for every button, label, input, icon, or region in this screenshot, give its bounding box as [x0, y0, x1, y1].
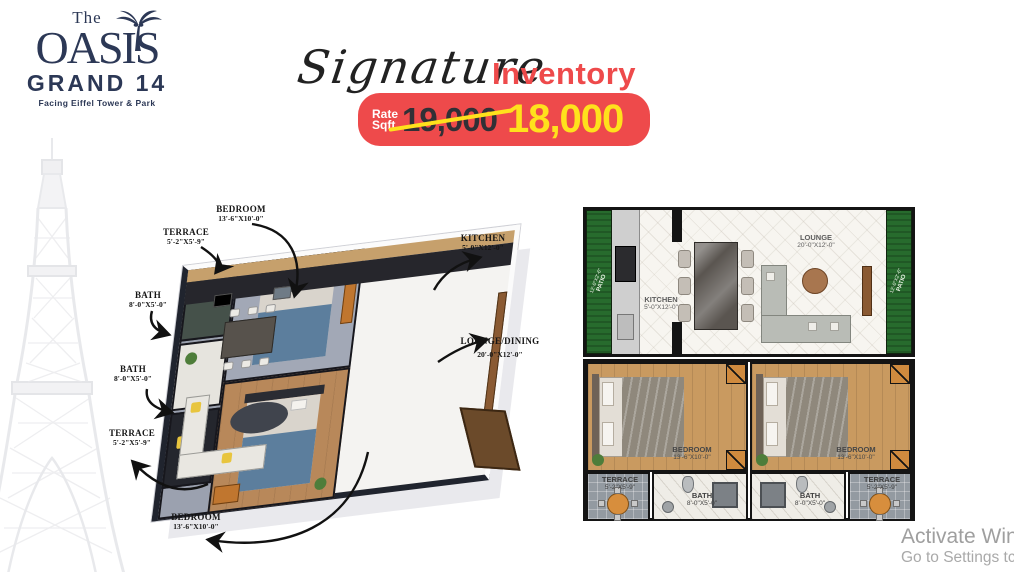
round-table: [607, 493, 629, 515]
headline-accent: Inventory: [492, 56, 636, 92]
floor-plan-3d: [152, 224, 521, 521]
logo-tagline: Facing Eiffel Tower & Park: [22, 98, 172, 108]
dresser: [212, 483, 240, 505]
coffee-table-2d: [802, 268, 828, 294]
label-bath-2: BATH8'-0"X5'-0": [100, 364, 166, 383]
wardrobe-hatch: [890, 364, 910, 384]
bath-left-2d: BATH 8'-0"X5'-0": [652, 472, 748, 521]
living-zone-2d: 12'-0"X2'-6" PATIO KITCHEN 5'-0"X12'-0": [583, 207, 915, 357]
kitchen-counter-2d: [612, 210, 640, 354]
plant: [756, 454, 768, 466]
windows-activation-watermark: Activate Win Go to Settings tc: [901, 525, 1014, 567]
patio-left: 12'-0"X2'-6" PATIO: [586, 210, 612, 354]
tv-console-2d: [862, 266, 872, 316]
chair: [678, 277, 691, 295]
flyer: The OASIS GRAND 14 Facing Eiffel Tower &…: [0, 0, 1014, 572]
label-bath-1: BATH8'-0"X5'-0": [115, 290, 181, 309]
bedroom-zone-2d: BEDROOM 13'-6"X10'-0" BEDROOM 13'-6"X10'…: [583, 359, 915, 521]
bedroom-right-2d: BEDROOM 13'-6"X10'-0": [750, 362, 912, 472]
wardrobe: [340, 282, 357, 324]
chair: [741, 250, 754, 268]
label-bedroom-bottom: BEDROOM13'-6"X10'-0": [150, 512, 242, 531]
cushion: [830, 322, 839, 331]
plant: [592, 454, 604, 466]
oasis-logo: The OASIS GRAND 14 Facing Eiffel Tower &…: [22, 8, 172, 108]
chair: [614, 514, 621, 521]
chair: [893, 500, 900, 507]
terrace-right-label: TERRACE 5'-2"X5'-9": [854, 476, 910, 492]
bath-right-2d: BATH 8'-0"X5'-0": [750, 472, 846, 521]
wardrobe-hatch: [890, 450, 910, 470]
wall-stub: [672, 322, 682, 354]
floor-plan-2d: 12'-0"X2'-6" PATIO KITCHEN 5'-0"X12'-0": [583, 207, 915, 521]
sink-icon: [617, 314, 634, 340]
wall-stub: [672, 210, 682, 242]
watermark-line2: Go to Settings tc: [901, 549, 1014, 567]
bed: [233, 384, 324, 492]
kitchen-label-2d: KITCHEN 5'-0"X12'-0": [626, 296, 696, 312]
old-rate: 19,000: [402, 101, 497, 139]
sink-icon: [662, 501, 674, 513]
plant: [314, 477, 327, 491]
chair: [598, 500, 605, 507]
bedroom-left-label: BEDROOM 13'-6"X10'-0": [660, 446, 724, 462]
wardrobe-hatch: [726, 450, 746, 470]
bath-right-label: BATH 8'-0"X5'-0": [782, 492, 838, 508]
chair: [741, 304, 754, 322]
terrace-left-label: TERRACE 5'-2"X5'-9": [592, 476, 648, 492]
chair: [631, 500, 638, 507]
dining-table-2d: [694, 242, 738, 330]
label-bedroom-top: BEDROOM13'-6"X10'-0": [195, 204, 287, 223]
chair: [741, 277, 754, 295]
stove-icon: [615, 246, 636, 282]
new-rate: 18,000: [507, 97, 623, 142]
chair: [860, 500, 867, 507]
chair: [678, 250, 691, 268]
logo-grand: GRAND 14: [22, 70, 172, 97]
patio-right: 12'-0"X2'-6" PATIO: [886, 210, 912, 354]
watermark-line1: Activate Win: [901, 525, 1014, 549]
cushion: [766, 272, 775, 281]
bedroom-left-2d: BEDROOM 13'-6"X10'-0": [586, 362, 748, 472]
lounge-label-2d: LOUNGE 20'-0"X12'-0": [776, 234, 856, 250]
wardrobe-hatch: [726, 364, 746, 384]
cushion: [808, 322, 817, 331]
bedroom-right-label: BEDROOM 13'-6"X10'-0": [824, 446, 888, 462]
terrace-right-2d: TERRACE 5'-2"X5'-9": [848, 472, 912, 521]
bedroom-3d-lower: [207, 367, 350, 514]
label-terrace-top: TERRACE5'-2"X5'-9": [148, 227, 224, 246]
chair: [876, 514, 883, 521]
sink: [273, 286, 292, 300]
eiffel-tower-graphic: [0, 138, 136, 572]
round-table: [869, 493, 891, 515]
stove: [213, 293, 232, 307]
dining-table: [220, 316, 276, 359]
bath-left-label: BATH 8'-0"X5'-0": [674, 492, 730, 508]
terrace-left-2d: TERRACE 5'-2"X5'-9": [586, 472, 650, 521]
palm-tree-icon: [112, 10, 164, 52]
label-lounge-dining: LOUNGE/DINING20'-0"X12'-0": [452, 336, 548, 359]
label-kitchen: KITCHEN5'-0"X12'-0": [445, 233, 521, 252]
plant: [184, 352, 197, 366]
rate-badge: Rate Sqft 19,000 18,000: [358, 93, 650, 146]
label-terrace-bottom: TERRACE5'-2"X5'-9": [96, 428, 168, 447]
